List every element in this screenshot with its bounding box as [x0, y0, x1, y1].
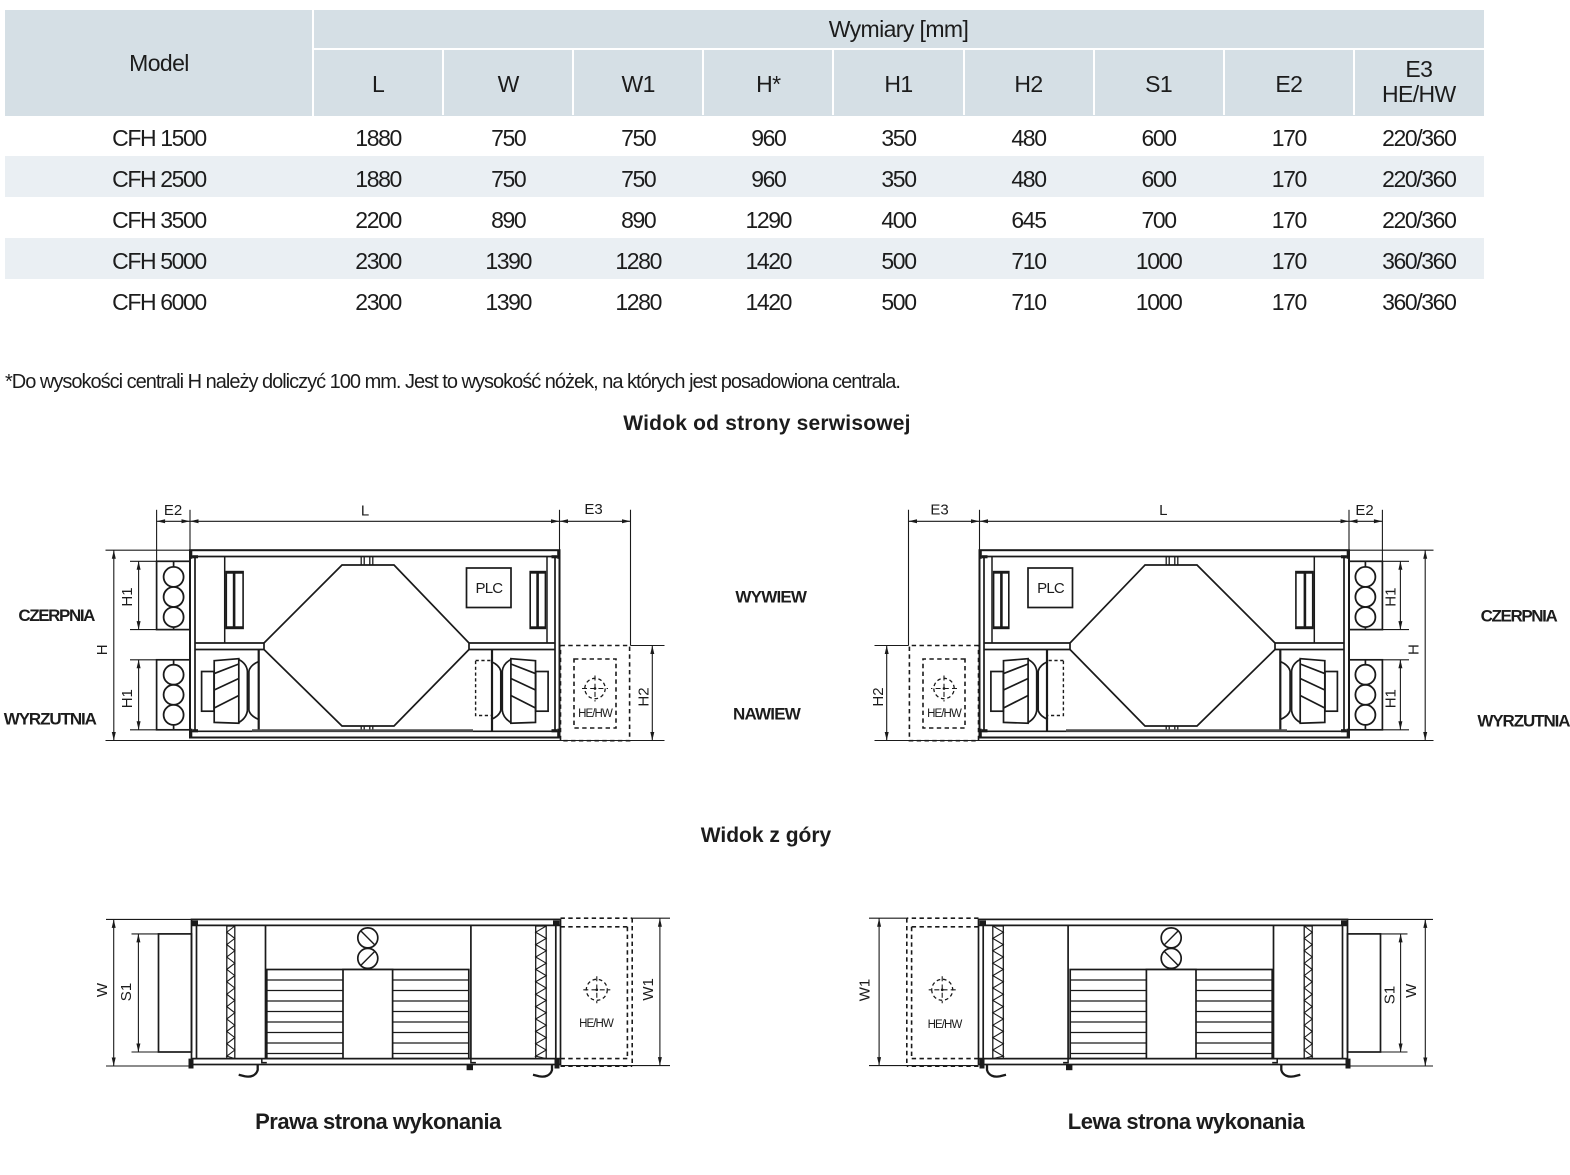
- svg-text:H: H: [94, 644, 111, 655]
- svg-text:E2: E2: [164, 502, 182, 519]
- svg-text:W: W: [94, 982, 111, 997]
- svg-text:WYWIEW: WYWIEW: [735, 587, 807, 606]
- svg-text:NAWIEW: NAWIEW: [733, 705, 802, 724]
- svg-text:S1: S1: [1381, 986, 1398, 1004]
- svg-text:S1: S1: [118, 983, 135, 1001]
- svg-text:L: L: [361, 502, 369, 519]
- svg-text:L: L: [1159, 502, 1167, 519]
- svg-text:H1: H1: [1382, 588, 1399, 607]
- svg-text:CZERPNIA: CZERPNIA: [1481, 607, 1558, 626]
- svg-text:PLC: PLC: [476, 580, 504, 597]
- svg-text:W1: W1: [857, 979, 874, 1002]
- svg-text:H1: H1: [119, 587, 136, 606]
- svg-text:E2: E2: [1355, 502, 1373, 519]
- svg-text:H2: H2: [636, 687, 653, 706]
- svg-text:HE/HW: HE/HW: [578, 708, 613, 720]
- svg-text:W: W: [1403, 983, 1420, 998]
- svg-text:E3: E3: [930, 502, 948, 519]
- svg-text:WYRZUTNIA: WYRZUTNIA: [1477, 712, 1570, 731]
- svg-text:H1: H1: [1382, 689, 1399, 708]
- svg-text:HE/HW: HE/HW: [579, 1018, 614, 1030]
- svg-text:PLC: PLC: [1037, 580, 1065, 597]
- svg-text:H: H: [1405, 644, 1422, 655]
- svg-text:E3: E3: [584, 501, 602, 518]
- svg-text:WYRZUTNIA: WYRZUTNIA: [4, 710, 97, 729]
- svg-text:H1: H1: [119, 689, 136, 708]
- svg-text:H2: H2: [870, 687, 887, 706]
- svg-text:CZERPNIA: CZERPNIA: [18, 606, 95, 625]
- svg-text:W1: W1: [640, 978, 657, 1001]
- svg-text:HE/HW: HE/HW: [927, 708, 962, 720]
- svg-text:HE/HW: HE/HW: [928, 1019, 963, 1031]
